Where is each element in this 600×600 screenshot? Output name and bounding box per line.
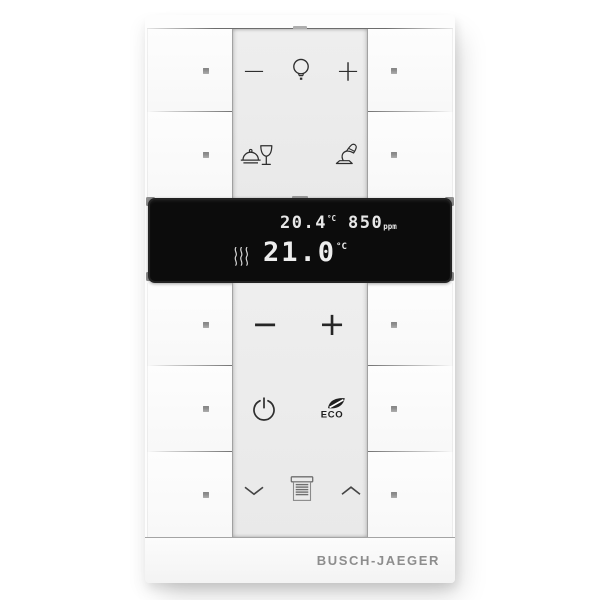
led-indicator-icon bbox=[203, 492, 209, 498]
led-indicator-icon bbox=[391, 406, 397, 412]
rocker-right-1[interactable] bbox=[368, 29, 453, 112]
blind-up-button[interactable] bbox=[341, 486, 362, 496]
led-indicator-icon bbox=[203, 322, 209, 328]
center-panel-upper: − + bbox=[232, 29, 368, 198]
minus-icon: − bbox=[252, 308, 279, 340]
scene-dining-button[interactable] bbox=[240, 144, 274, 167]
temp-plus-button[interactable]: + bbox=[319, 308, 346, 340]
co2-unit: ppm bbox=[383, 223, 397, 231]
led-indicator-icon bbox=[391, 322, 397, 328]
led-indicator-icon bbox=[203, 68, 209, 74]
rocker-left-4[interactable] bbox=[147, 366, 232, 452]
rocker-right-5[interactable] bbox=[368, 452, 453, 537]
setpoint-value: 21.0 bbox=[263, 240, 336, 266]
brand-strip: BUSCH-JAEGER bbox=[145, 537, 455, 583]
wall-control-device: − + bbox=[145, 15, 455, 583]
lightbulb-icon bbox=[290, 58, 312, 82]
desk-lamp-icon bbox=[335, 141, 359, 166]
chevron-down-icon bbox=[244, 486, 265, 496]
blind-preset-button[interactable] bbox=[291, 476, 314, 502]
chevron-up-icon bbox=[341, 486, 362, 496]
led-indicator-icon bbox=[203, 406, 209, 412]
screenshot-canvas: − + bbox=[0, 0, 600, 600]
led-indicator-icon bbox=[391, 152, 397, 158]
dim-minus-button[interactable]: − bbox=[242, 57, 266, 86]
rocker-right-4[interactable] bbox=[368, 366, 453, 452]
blinds-icon bbox=[291, 476, 314, 502]
co2-value: 850 bbox=[348, 215, 383, 231]
dining-scene-icon bbox=[240, 144, 274, 167]
heating-waves-icon bbox=[233, 247, 250, 266]
center-panel-lower: − + ECO bbox=[232, 283, 368, 537]
power-button[interactable] bbox=[251, 396, 278, 423]
temp-minus-button[interactable]: − bbox=[252, 308, 279, 340]
setpoint-unit: °C bbox=[336, 242, 347, 252]
eco-mode-button[interactable]: ECO bbox=[321, 398, 343, 421]
led-indicator-icon bbox=[391, 68, 397, 74]
dim-plus-button[interactable]: + bbox=[336, 57, 360, 86]
rocker-left-2[interactable] bbox=[147, 112, 232, 198]
rocker-left-3[interactable] bbox=[147, 283, 232, 366]
brand-logo: BUSCH-JAEGER bbox=[317, 553, 440, 568]
plus-icon: + bbox=[336, 57, 360, 86]
led-indicator-icon bbox=[203, 152, 209, 158]
eco-label: ECO bbox=[321, 410, 343, 421]
eco-leaf-icon bbox=[324, 398, 346, 411]
rocker-right-3[interactable] bbox=[368, 283, 453, 366]
scene-lamp-button[interactable] bbox=[335, 141, 359, 166]
display-status-line: 20.4 °C 850 ppm bbox=[280, 215, 397, 231]
blind-down-button[interactable] bbox=[244, 486, 265, 496]
ambient-temp-value: 20.4 bbox=[280, 215, 327, 231]
power-icon bbox=[251, 396, 278, 423]
rocker-left-1[interactable] bbox=[147, 29, 232, 112]
led-indicator-icon bbox=[391, 492, 397, 498]
rocker-right-2[interactable] bbox=[368, 112, 453, 198]
plus-icon: + bbox=[319, 308, 346, 340]
rocker-left-5[interactable] bbox=[147, 452, 232, 537]
light-toggle-button[interactable] bbox=[290, 58, 312, 82]
minus-icon: − bbox=[242, 57, 266, 86]
ambient-temp-unit: °C bbox=[327, 215, 336, 223]
display-setpoint-line: 21.0 °C bbox=[263, 240, 347, 266]
lcd-display: 20.4 °C 850 ppm 21.0 °C bbox=[148, 198, 452, 283]
